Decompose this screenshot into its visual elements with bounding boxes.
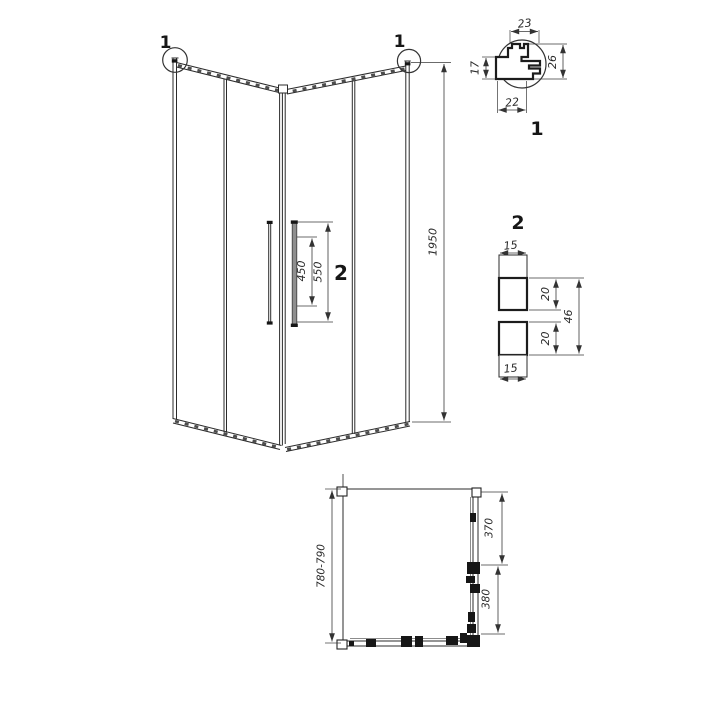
profile-detail-1: 23 17 26 22 1 (469, 16, 568, 140)
detail-1-dim-left: 17 (469, 57, 496, 79)
plan-door-dim-text: 380 (481, 589, 493, 609)
corner-connector (279, 85, 288, 93)
plan-corner-post-top-right (472, 488, 481, 497)
plan-corner-post-top-left (337, 487, 347, 496)
shower-enclosure-drawing: 1 1 1950 450 550 2 23 (0, 0, 720, 720)
plan-depth-dimension: 780-790 (316, 489, 342, 643)
handle-bar-upper-section (499, 278, 527, 310)
left-wall-post (172, 58, 179, 419)
height-dimension: 1950 (411, 63, 451, 423)
center-corner-post (280, 93, 286, 446)
plan-hardware-blocks (349, 513, 480, 647)
right-door-edge (352, 81, 355, 434)
plan-corner-post-bottom-left (337, 640, 347, 649)
detail-1-dim-top: 23 (510, 16, 539, 43)
plan-right-dimensions: 370 380 (481, 492, 509, 634)
handle-dimensions: 450 550 2 (295, 222, 348, 322)
detail-1-marker-label-left: 1 (160, 33, 172, 53)
left-door-handle (267, 221, 273, 325)
detail-1-left-height-text: 17 (469, 61, 482, 75)
detail-2-dims: 20 20 46 (529, 278, 584, 355)
detail-1-caption: 1 (530, 118, 543, 140)
detail-1-top-width-text: 23 (517, 16, 532, 30)
detail-2-bottom-cap-text: 15 (503, 361, 518, 375)
detail-2-overall-text: 46 (562, 310, 575, 324)
handle-detail-2: 2 15 20 20 46 15 (499, 212, 584, 379)
technical-drawing-sheet: 1 1 1950 450 550 2 23 (0, 0, 720, 720)
bottom-rail-left (173, 419, 282, 450)
detail-1-marker-label-right: 1 (394, 32, 406, 52)
handle-outer-dim-text: 550 (312, 262, 325, 283)
plan-fixed-panel-dim-text: 370 (484, 518, 496, 538)
detail-2-lower-bar-text: 20 (539, 332, 552, 346)
detail-1-bottom-width-text: 22 (504, 95, 519, 109)
top-rail-left (177, 63, 282, 93)
plan-depth-dim-text: 780-790 (316, 544, 328, 588)
detail-2-top-cap-text: 15 (503, 238, 518, 252)
plan-view: 780-790 370 380 (316, 474, 509, 649)
height-dim-text: 1950 (427, 228, 440, 256)
detail-2-upper-bar-text: 20 (539, 287, 552, 301)
handle-inner-dim-text: 450 (295, 261, 308, 282)
detail-2-caption: 2 (511, 212, 524, 234)
handle-bar-lower-section (499, 322, 527, 355)
detail-2-marker-label: 2 (334, 261, 348, 285)
bottom-rail-right (285, 422, 410, 452)
right-wall-post (404, 61, 411, 422)
left-door-edge (224, 79, 227, 433)
top-rail-right (287, 66, 406, 94)
handle-cap-upper-section (499, 255, 527, 278)
elevation-view: 1 1 1950 450 550 2 (160, 32, 451, 452)
detail-1-right-height-text: 26 (546, 55, 559, 69)
